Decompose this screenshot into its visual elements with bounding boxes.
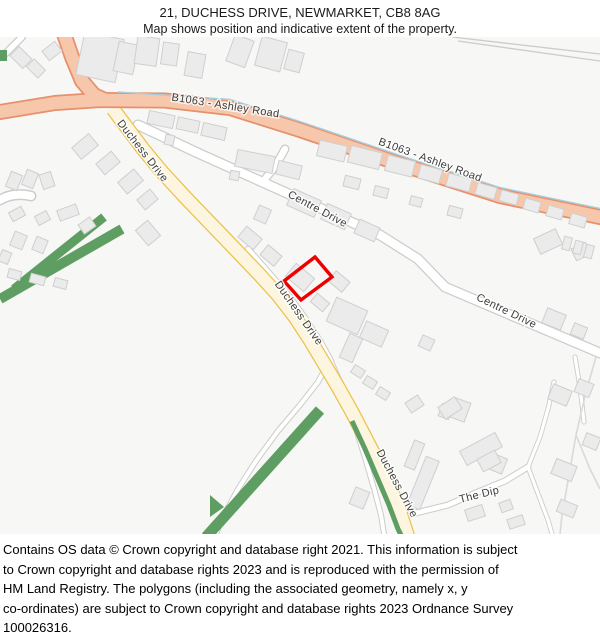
copyright-line: HM Land Registry. The polygons (includin… [3, 579, 597, 599]
green-patch [0, 50, 7, 61]
building [229, 170, 240, 181]
page-title: 21, DUCHESS DRIVE, NEWMARKET, CB8 8AG [0, 5, 600, 21]
map-header: 21, DUCHESS DRIVE, NEWMARKET, CB8 8AG Ma… [0, 0, 600, 37]
copyright-line: co-ordinates) are subject to Crown copyr… [3, 599, 597, 619]
copyright-line: 100026316. [3, 618, 597, 638]
page-subtitle: Map shows position and indicative extent… [0, 21, 600, 37]
building [164, 134, 175, 146]
copyright-line: to Crown copyright and database rights 2… [3, 560, 597, 580]
map-svg: B1063 - Ashley Road B1063 - Ashley Road … [0, 37, 600, 534]
copyright-line: Contains OS data © Crown copyright and d… [3, 540, 597, 560]
building [134, 37, 160, 66]
map-canvas: B1063 - Ashley Road B1063 - Ashley Road … [0, 37, 600, 534]
building [161, 42, 180, 66]
copyright-notice: Contains OS data © Crown copyright and d… [0, 534, 600, 638]
building [184, 52, 206, 79]
